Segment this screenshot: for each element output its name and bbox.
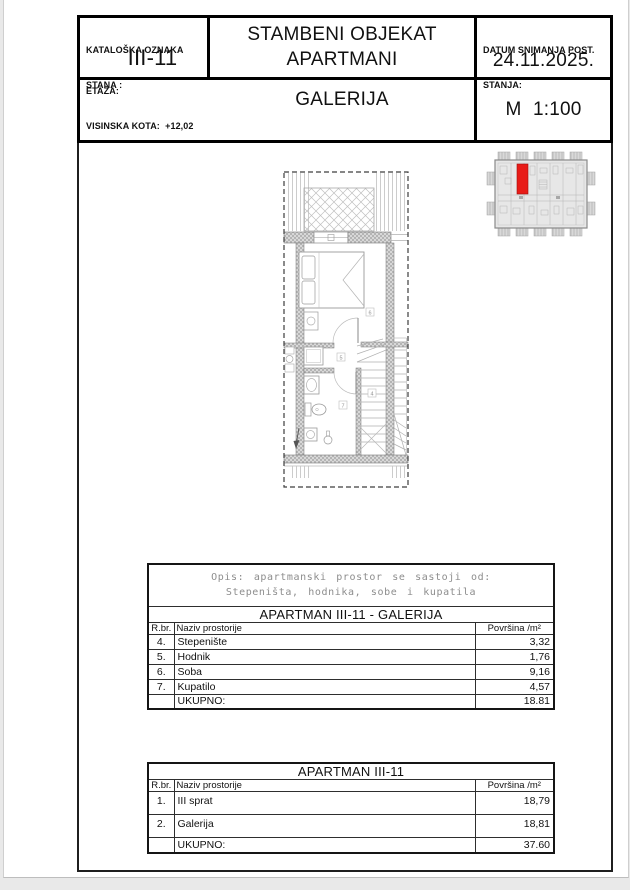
closet xyxy=(304,347,323,365)
skylight-hatch xyxy=(304,188,374,231)
area-table-galerija: Opis: apartmanski prostor se sastoji od:… xyxy=(147,563,555,710)
wall-top-right xyxy=(348,232,391,243)
niche-fixtures xyxy=(285,347,294,372)
table-row: 1. III sprat 18,79 xyxy=(148,792,554,815)
key-plan xyxy=(486,150,596,238)
wall-top-left xyxy=(284,232,314,243)
svg-text:7: 7 xyxy=(341,403,344,409)
sink-vanity xyxy=(304,376,319,394)
wall-bath xyxy=(304,368,334,373)
room-label-room: 6 xyxy=(366,308,374,316)
row-name: Hodnik xyxy=(174,649,475,664)
floor-value: GALERIJA xyxy=(210,89,474,111)
table-title-row: APARTMAN III-11 - GALERIJA xyxy=(148,606,554,622)
col-header-area: Površina /m² xyxy=(475,622,554,634)
row-num: 2. xyxy=(148,815,174,838)
row-num: 5. xyxy=(148,649,174,664)
row-area: 18,81 xyxy=(475,815,554,838)
project-title-line2: APARTMANI xyxy=(287,49,398,71)
sheet-page: KATALOŠKA OZNAKA STANA : III-11 STAMBENI… xyxy=(3,0,629,878)
table-row: 7. Kupatilo 4,57 xyxy=(148,679,554,694)
scale-cell: M 1:100 xyxy=(477,80,610,140)
col-header-name: Naziv prostorije xyxy=(174,622,475,634)
wall-center xyxy=(386,243,394,455)
table-title-row: APARTMAN III-11 xyxy=(148,763,554,780)
survey-date-value: 24.11.2025. xyxy=(477,50,610,72)
scale-value: M 1:100 xyxy=(505,99,581,121)
description-line1: Opis: apartmanski prostor se sastoji od: xyxy=(152,570,550,585)
table-header-row: R.br. Naziv prostorije Površina /m² xyxy=(148,622,554,634)
catalog-number-cell: KATALOŠKA OZNAKA STANA : III-11 xyxy=(80,18,210,80)
wall-bottom xyxy=(284,455,408,463)
row-num: 1. xyxy=(148,792,174,815)
total-num xyxy=(148,838,174,853)
project-title-line1: STAMBENI OBJEKAT xyxy=(247,24,436,46)
key-plan-building xyxy=(495,160,587,228)
architectural-sheet: { "title_block": { "catalog": { "label_l… xyxy=(0,0,630,890)
total-num xyxy=(148,694,174,709)
height-note: VISINSKA KOTA: +12,02 xyxy=(86,121,193,133)
table-header-row: R.br. Naziv prostorije Površina /m² xyxy=(148,780,554,792)
total-value: 18.81 xyxy=(475,694,554,709)
row-num: 4. xyxy=(148,634,174,649)
room-label-bath: 7 xyxy=(339,401,347,409)
floor-plan: 6 5 7 4 xyxy=(271,166,416,496)
row-area: 4,57 xyxy=(475,679,554,694)
stairs xyxy=(357,338,407,455)
survey-date-cell: DATUM SNIMANJA POST. STANJA: 24.11.2025. xyxy=(477,18,610,80)
total-value: 37.60 xyxy=(475,838,554,853)
table-title: APARTMAN III-11 - GALERIJA xyxy=(148,606,554,622)
floor-label: ETAŽA: xyxy=(86,86,119,98)
door-bath xyxy=(334,372,356,394)
nightstand xyxy=(304,312,318,330)
description-line2: Stepeništa, hodnika, sobe i kupatila xyxy=(152,585,550,600)
row-area: 18,79 xyxy=(475,792,554,815)
toilet xyxy=(305,403,326,416)
row-area: 3,32 xyxy=(475,634,554,649)
col-header-num: R.br. xyxy=(148,622,174,634)
row-area: 1,76 xyxy=(475,649,554,664)
catalog-value: III-11 xyxy=(98,45,207,71)
title-block: KATALOŠKA OZNAKA STANA : III-11 STAMBENI… xyxy=(77,15,613,143)
col-header-num: R.br. xyxy=(148,780,174,792)
row-num: 6. xyxy=(148,664,174,679)
table-row: 6. Soba 9,16 xyxy=(148,664,554,679)
row-name: Kupatilo xyxy=(174,679,475,694)
row-num: 7. xyxy=(148,679,174,694)
washing-machine xyxy=(304,428,317,441)
door-room xyxy=(333,318,358,343)
col-header-name: Naziv prostorije xyxy=(174,780,475,792)
row-area: 9,16 xyxy=(475,664,554,679)
floor-drain xyxy=(324,431,332,444)
svg-text:6: 6 xyxy=(368,310,371,316)
bed xyxy=(299,252,364,308)
roof-hatch-right xyxy=(375,173,408,231)
table-title: APARTMAN III-11 xyxy=(148,763,554,780)
total-row: UKUPNO: 37.60 xyxy=(148,838,554,853)
table-row: 2. Galerija 18,81 xyxy=(148,815,554,838)
floor-cell: ETAŽA: GALERIJA VISINSKA KOTA: +12,02 xyxy=(80,80,477,140)
svg-text:5: 5 xyxy=(339,355,342,361)
col-header-area: Površina /m² xyxy=(475,780,554,792)
total-label: UKUPNO: xyxy=(174,838,475,853)
table-row: 4. Stepenište 3,32 xyxy=(148,634,554,649)
svg-text:4: 4 xyxy=(370,391,373,397)
area-table-apartman: APARTMAN III-11 R.br. Naziv prostorije P… xyxy=(147,762,555,854)
row-name: III sprat xyxy=(174,792,475,815)
project-title-cell: STAMBENI OBJEKAT APARTMANI xyxy=(210,18,477,80)
room-label-stairs: 4 xyxy=(368,389,376,397)
row-name: Stepenište xyxy=(174,634,475,649)
table-row: 5. Hodnik 1,76 xyxy=(148,649,554,664)
row-name: Soba xyxy=(174,664,475,679)
total-label: UKUPNO: xyxy=(174,694,475,709)
key-plan-highlight-unit xyxy=(517,164,528,194)
total-row: UKUPNO: 18.81 xyxy=(148,694,554,709)
row-name: Galerija xyxy=(174,815,475,838)
room-label-hall: 5 xyxy=(337,353,345,361)
description-row: Opis: apartmanski prostor se sastoji od:… xyxy=(148,564,554,606)
